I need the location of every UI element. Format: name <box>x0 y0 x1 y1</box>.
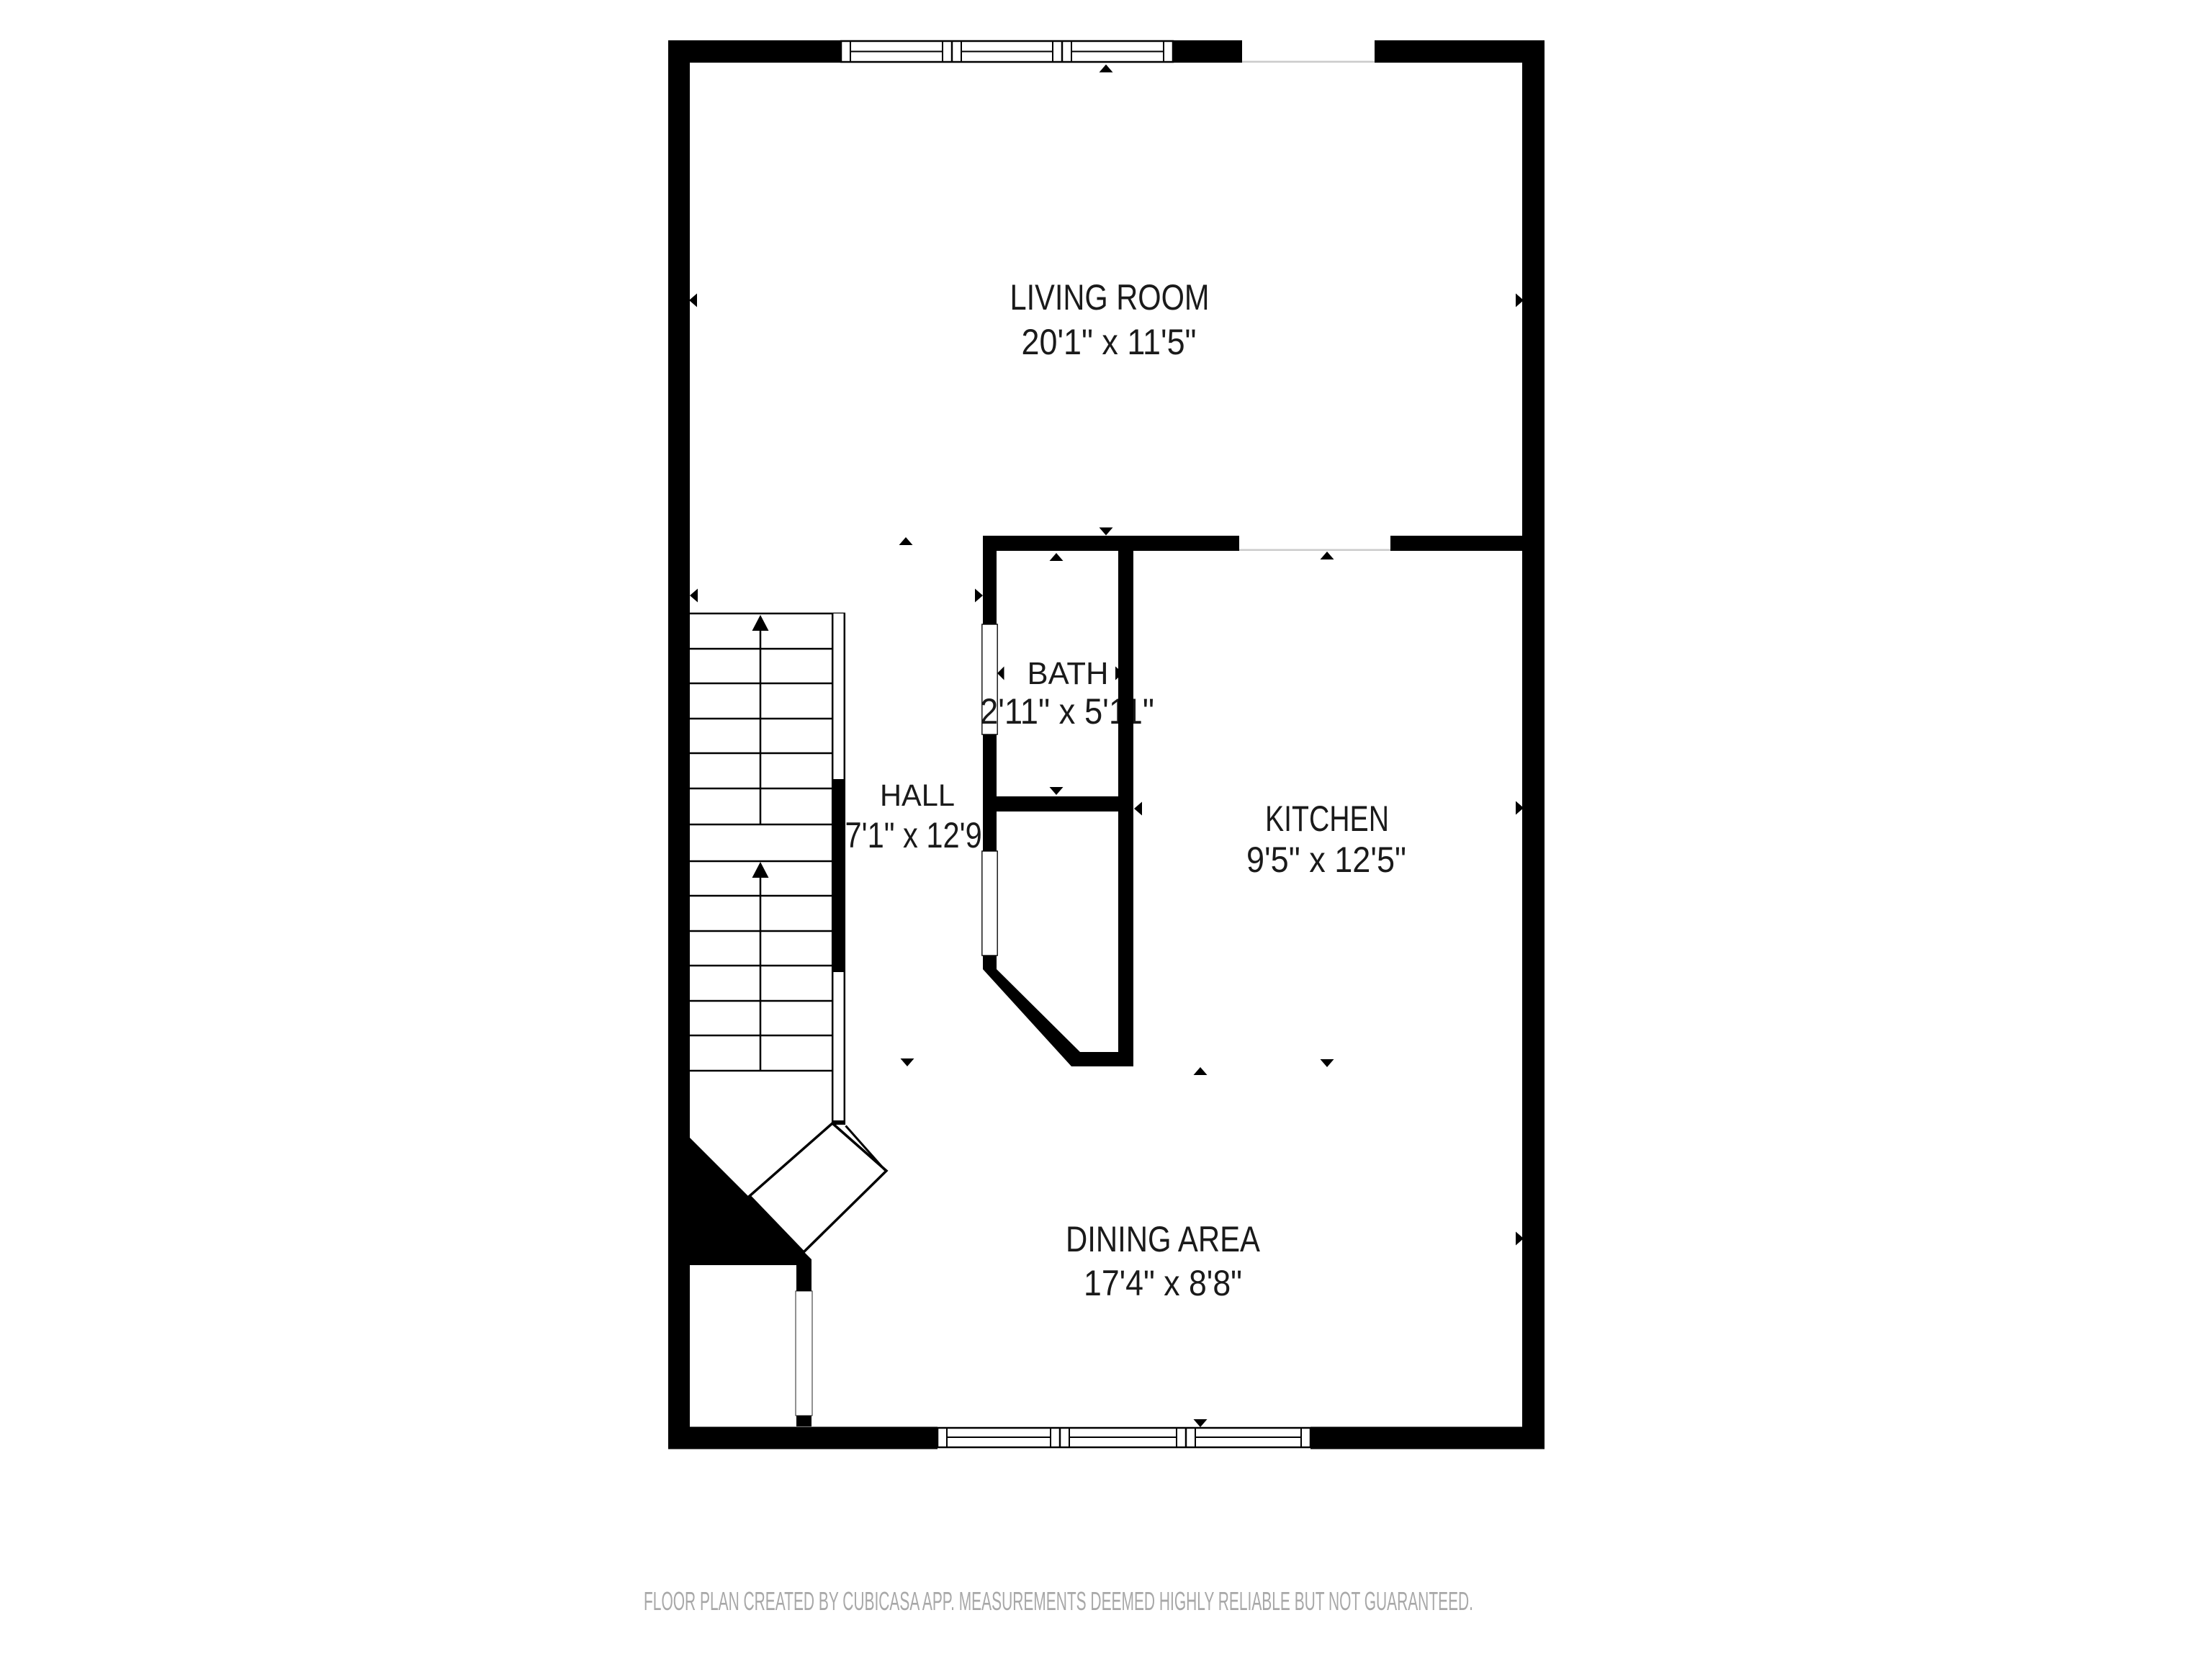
svg-text:9'5" x 12'5": 9'5" x 12'5" <box>1246 840 1406 880</box>
svg-text:7'1" x 12'9": 7'1" x 12'9" <box>845 815 993 855</box>
svg-text:HALL: HALL <box>880 778 955 813</box>
svg-text:20'1" x 11'5": 20'1" x 11'5" <box>1022 322 1197 362</box>
svg-text:KITCHEN: KITCHEN <box>1265 799 1389 839</box>
svg-text:FLOOR PLAN CREATED BY CUBICASA: FLOOR PLAN CREATED BY CUBICASA APP. MEAS… <box>644 1586 1473 1616</box>
svg-text:LIVING ROOM: LIVING ROOM <box>1010 277 1210 318</box>
svg-text:BATH: BATH <box>1028 656 1109 691</box>
svg-text:17'4" x 8'8": 17'4" x 8'8" <box>1084 1263 1242 1303</box>
svg-text:DINING AREA: DINING AREA <box>1066 1219 1261 1259</box>
